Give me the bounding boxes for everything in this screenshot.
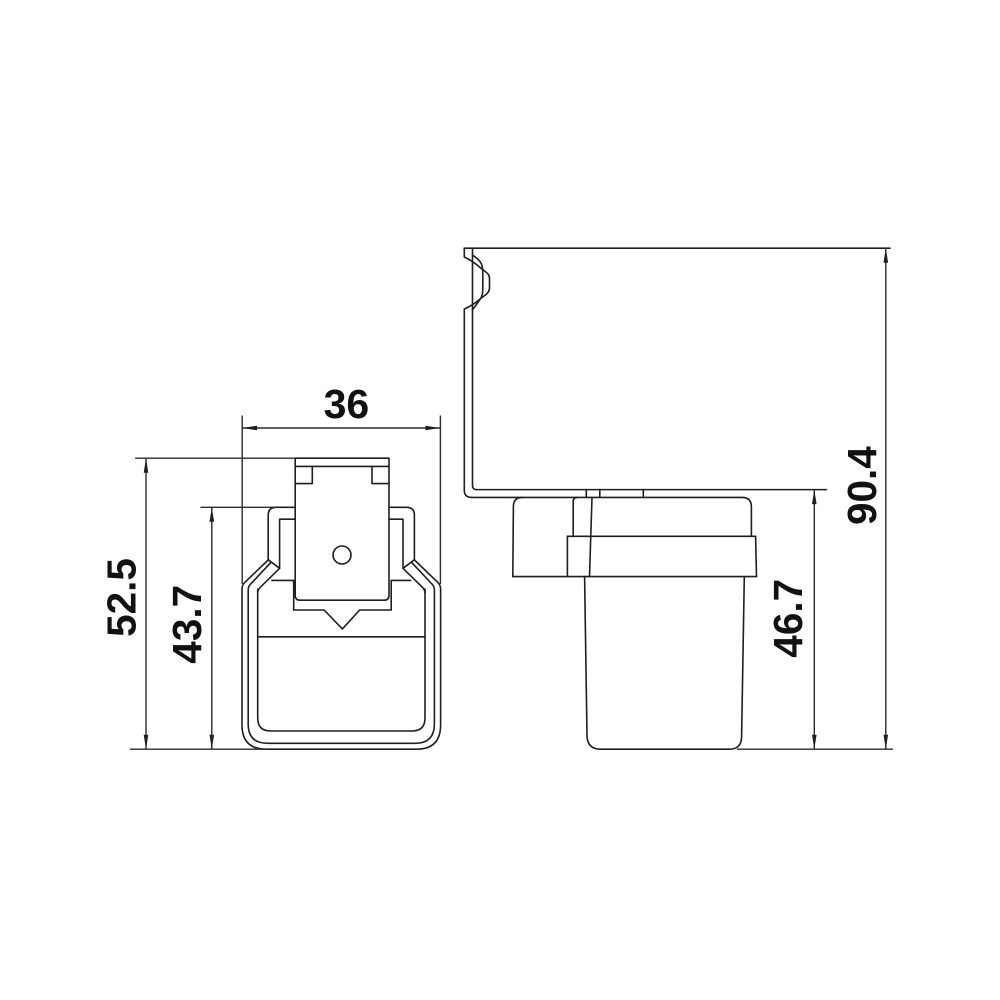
- svg-text:43.7: 43.7: [164, 585, 210, 664]
- svg-text:46.7: 46.7: [765, 579, 811, 658]
- svg-text:90.4: 90.4: [839, 446, 885, 525]
- svg-text:52.5: 52.5: [98, 558, 144, 637]
- svg-text:36: 36: [324, 381, 370, 427]
